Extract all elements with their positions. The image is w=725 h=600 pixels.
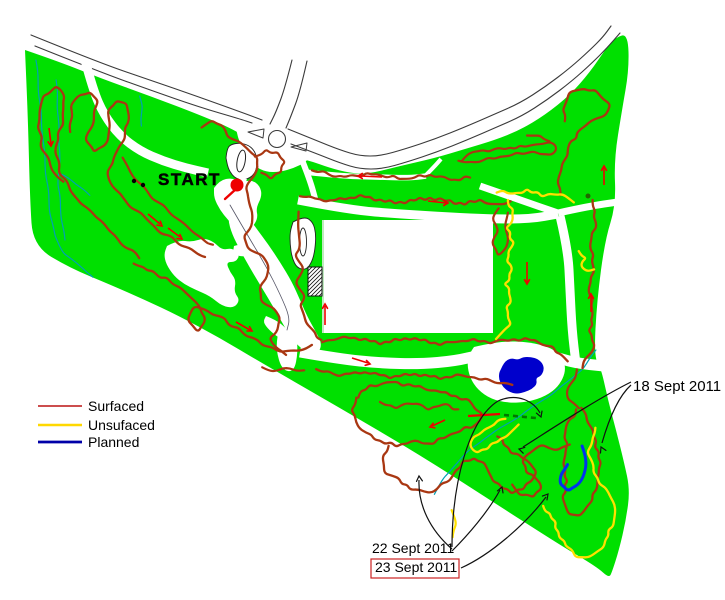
svg-text:22 Sept 2011: 22 Sept 2011 xyxy=(372,540,454,556)
svg-text:START: START xyxy=(158,170,221,189)
svg-text:18 Sept 2011: 18 Sept 2011 xyxy=(633,378,721,395)
svg-text:Unsufaced: Unsufaced xyxy=(88,417,155,433)
svg-text:23 Sept 2011: 23 Sept 2011 xyxy=(375,559,457,575)
svg-text:Planned: Planned xyxy=(88,434,139,450)
svg-text:Surfaced: Surfaced xyxy=(88,398,144,414)
